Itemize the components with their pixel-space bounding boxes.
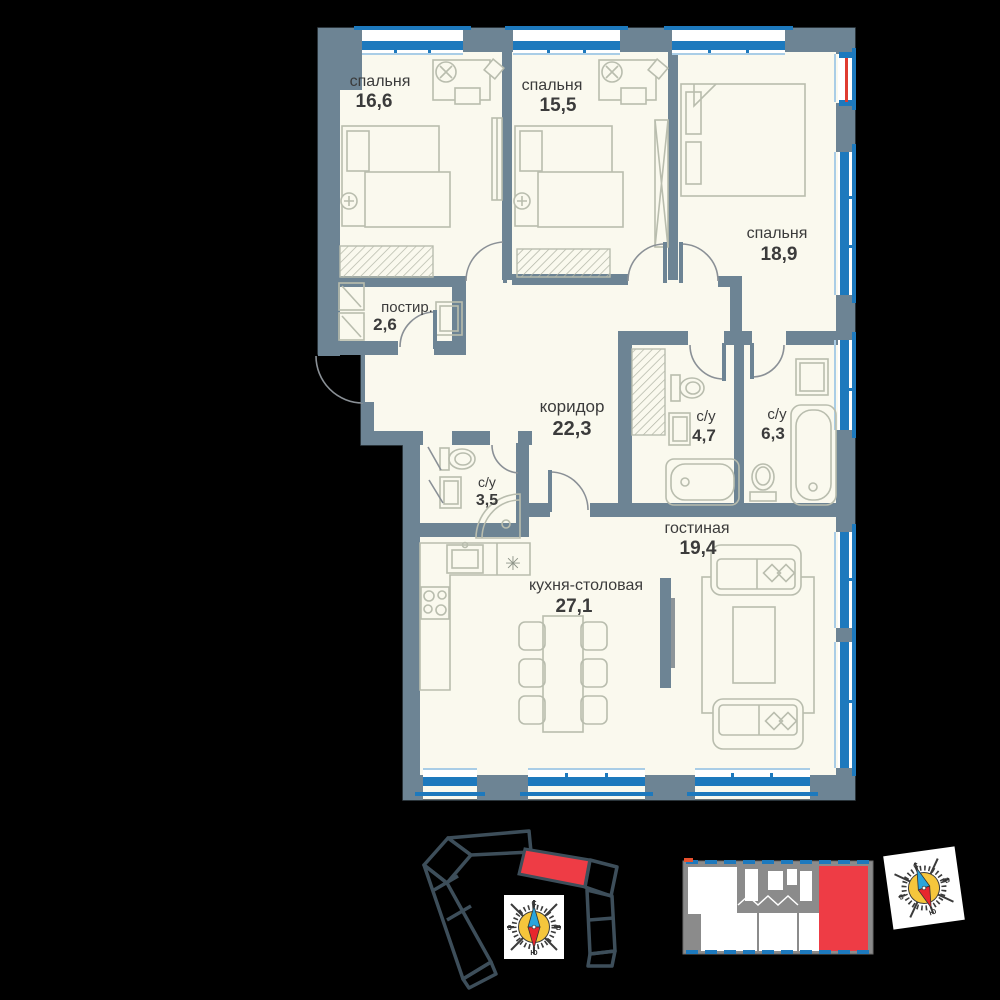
room-area-corridor: 22,3 <box>553 418 592 440</box>
room-label-bathroom-2: с/у <box>767 406 787 423</box>
coffee-table-icon <box>733 607 775 683</box>
room-area-bedroom-3: 18,9 <box>761 244 798 265</box>
room-area-kitchen: 27,1 <box>556 596 593 617</box>
compass-east-label: В <box>556 925 561 932</box>
shower-icon <box>632 349 665 435</box>
compass-north-label: С <box>531 901 536 908</box>
room-label-bedroom-2: спальня <box>522 77 583 94</box>
monitor-icon <box>455 88 480 104</box>
entrance-door <box>316 355 363 403</box>
room-area-bathroom-1: 4,7 <box>692 426 716 445</box>
window-top-3 <box>664 26 793 55</box>
minimap-core <box>800 871 812 901</box>
room-area-living: 19,4 <box>680 538 717 559</box>
compass-west-label: З <box>507 925 512 932</box>
wardrobe-icon <box>517 249 610 277</box>
monitor-icon <box>621 88 646 104</box>
room-area-laundry: 2,6 <box>373 315 397 334</box>
sofa-icon <box>713 699 803 749</box>
floorplan-canvas: ✳ <box>0 0 1000 1000</box>
tv-icon <box>671 598 675 668</box>
room-label-laundry: постир. <box>381 299 433 316</box>
minimap-marker <box>684 858 693 862</box>
wardrobe-icon <box>340 246 433 277</box>
minimap-unit <box>688 867 737 914</box>
minimap-unit <box>701 913 757 951</box>
room-area-bedroom-2: 15,5 <box>540 95 577 116</box>
room-label-bedroom-3: спальня <box>747 225 808 242</box>
room-label-bathroom-3: с/у <box>478 474 496 490</box>
floor-minimap <box>683 858 873 954</box>
compass-icon-tilted: С Ю З В <box>883 846 965 929</box>
sofa-icon <box>711 545 801 595</box>
dishwasher-icon: ✳ <box>505 554 521 575</box>
room-label-living: гостиная <box>664 520 729 537</box>
room-area-bathroom-2: 6,3 <box>761 424 785 443</box>
minimap-core <box>787 869 797 885</box>
room-label-bathroom-1: с/у <box>696 408 716 425</box>
highlighted-section <box>519 849 590 887</box>
room-label-kitchen: кухня-столовая <box>529 577 643 594</box>
minimap-unit <box>759 913 797 951</box>
minimap-core <box>768 871 783 890</box>
room-label-bedroom-1: спальня <box>350 73 411 90</box>
highlighted-unit <box>819 866 868 951</box>
room-label-corridor: коридор <box>540 397 605 416</box>
room-area-bedroom-1: 16,6 <box>356 91 393 112</box>
compass-icon: С Ю З В <box>504 895 564 959</box>
room-area-bathroom-3: 3,5 <box>476 492 498 509</box>
window-top-1 <box>354 26 471 55</box>
compass-south-label: Ю <box>530 950 537 957</box>
floorplan-page: ✳ <box>0 0 1000 1000</box>
window-top-2 <box>505 26 628 55</box>
